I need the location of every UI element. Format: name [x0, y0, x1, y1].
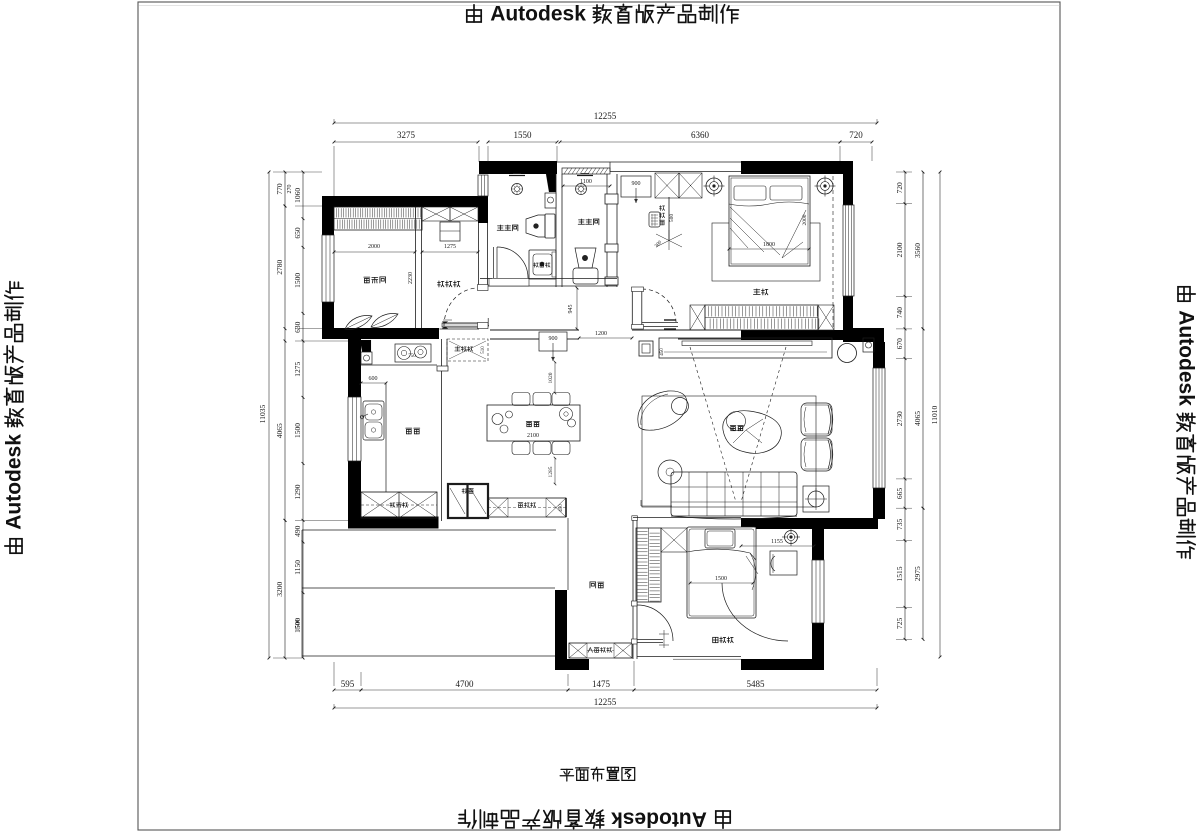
svg-text:2000: 2000 — [368, 244, 380, 250]
svg-text:Autodesk: Autodesk — [2, 434, 25, 530]
svg-text:1020: 1020 — [548, 372, 554, 383]
svg-text:720: 720 — [849, 130, 863, 140]
svg-text:650: 650 — [293, 227, 302, 239]
svg-text:1200: 1200 — [595, 331, 607, 337]
svg-text:450: 450 — [660, 348, 665, 356]
svg-text:735: 735 — [895, 519, 904, 531]
svg-text:2730: 2730 — [895, 411, 904, 426]
svg-text:12255: 12255 — [594, 111, 617, 121]
svg-text:4065: 4065 — [275, 423, 284, 438]
svg-text:1060: 1060 — [293, 188, 302, 203]
svg-text:Autodesk: Autodesk — [490, 2, 586, 25]
svg-text:900: 900 — [549, 336, 558, 342]
svg-text:1275: 1275 — [293, 361, 302, 376]
svg-text:Autodesk: Autodesk — [611, 808, 707, 831]
svg-text:11010: 11010 — [930, 406, 939, 425]
svg-text:1100: 1100 — [580, 179, 592, 185]
svg-text:4700: 4700 — [456, 679, 475, 689]
svg-text:2000: 2000 — [802, 214, 808, 225]
svg-text:1500: 1500 — [715, 576, 727, 582]
svg-text:725: 725 — [895, 618, 904, 630]
svg-text:12255: 12255 — [594, 697, 617, 707]
svg-text:6360: 6360 — [691, 130, 710, 140]
svg-text:1800: 1800 — [763, 242, 775, 248]
svg-text:2230: 2230 — [408, 272, 414, 284]
svg-text:1515: 1515 — [895, 566, 904, 581]
svg-text:1500: 1500 — [293, 273, 302, 288]
svg-text:3200: 3200 — [275, 581, 284, 596]
svg-text:750: 750 — [408, 354, 416, 359]
svg-text:720: 720 — [895, 182, 904, 194]
svg-text:595: 595 — [341, 679, 355, 689]
svg-text:3275: 3275 — [397, 130, 416, 140]
svg-text:900: 900 — [632, 181, 641, 187]
svg-text:500: 500 — [669, 214, 675, 223]
svg-text:490: 490 — [293, 525, 302, 537]
svg-text:1500: 1500 — [293, 423, 302, 438]
svg-text:2975: 2975 — [913, 566, 922, 581]
svg-text:4065: 4065 — [913, 411, 922, 426]
svg-text:740: 740 — [895, 307, 904, 319]
svg-text:1550: 1550 — [514, 130, 533, 140]
svg-text:670: 670 — [895, 338, 904, 350]
svg-text:450: 450 — [559, 504, 564, 512]
svg-text:510: 510 — [481, 346, 486, 354]
svg-text:2100: 2100 — [895, 242, 904, 257]
svg-text:5485: 5485 — [747, 679, 766, 689]
svg-text:1155: 1155 — [771, 539, 783, 545]
svg-text:2100: 2100 — [527, 433, 539, 439]
svg-text:1500: 1500 — [293, 618, 302, 633]
svg-text:1290: 1290 — [293, 484, 302, 499]
svg-text:1275: 1275 — [444, 244, 456, 250]
svg-text:11035: 11035 — [258, 405, 267, 424]
svg-text:665: 665 — [895, 488, 904, 500]
svg-text:3560: 3560 — [913, 243, 922, 258]
svg-text:1150: 1150 — [293, 560, 302, 575]
svg-text:630: 630 — [293, 321, 302, 333]
svg-text:1285: 1285 — [548, 466, 554, 477]
svg-text:600: 600 — [369, 376, 378, 382]
svg-text:945: 945 — [568, 305, 574, 314]
svg-text:Autodesk: Autodesk — [1175, 310, 1198, 406]
svg-text:2780: 2780 — [275, 260, 284, 275]
svg-text:270: 270 — [287, 185, 293, 194]
svg-text:1475: 1475 — [592, 679, 611, 689]
svg-text:770: 770 — [275, 183, 284, 195]
